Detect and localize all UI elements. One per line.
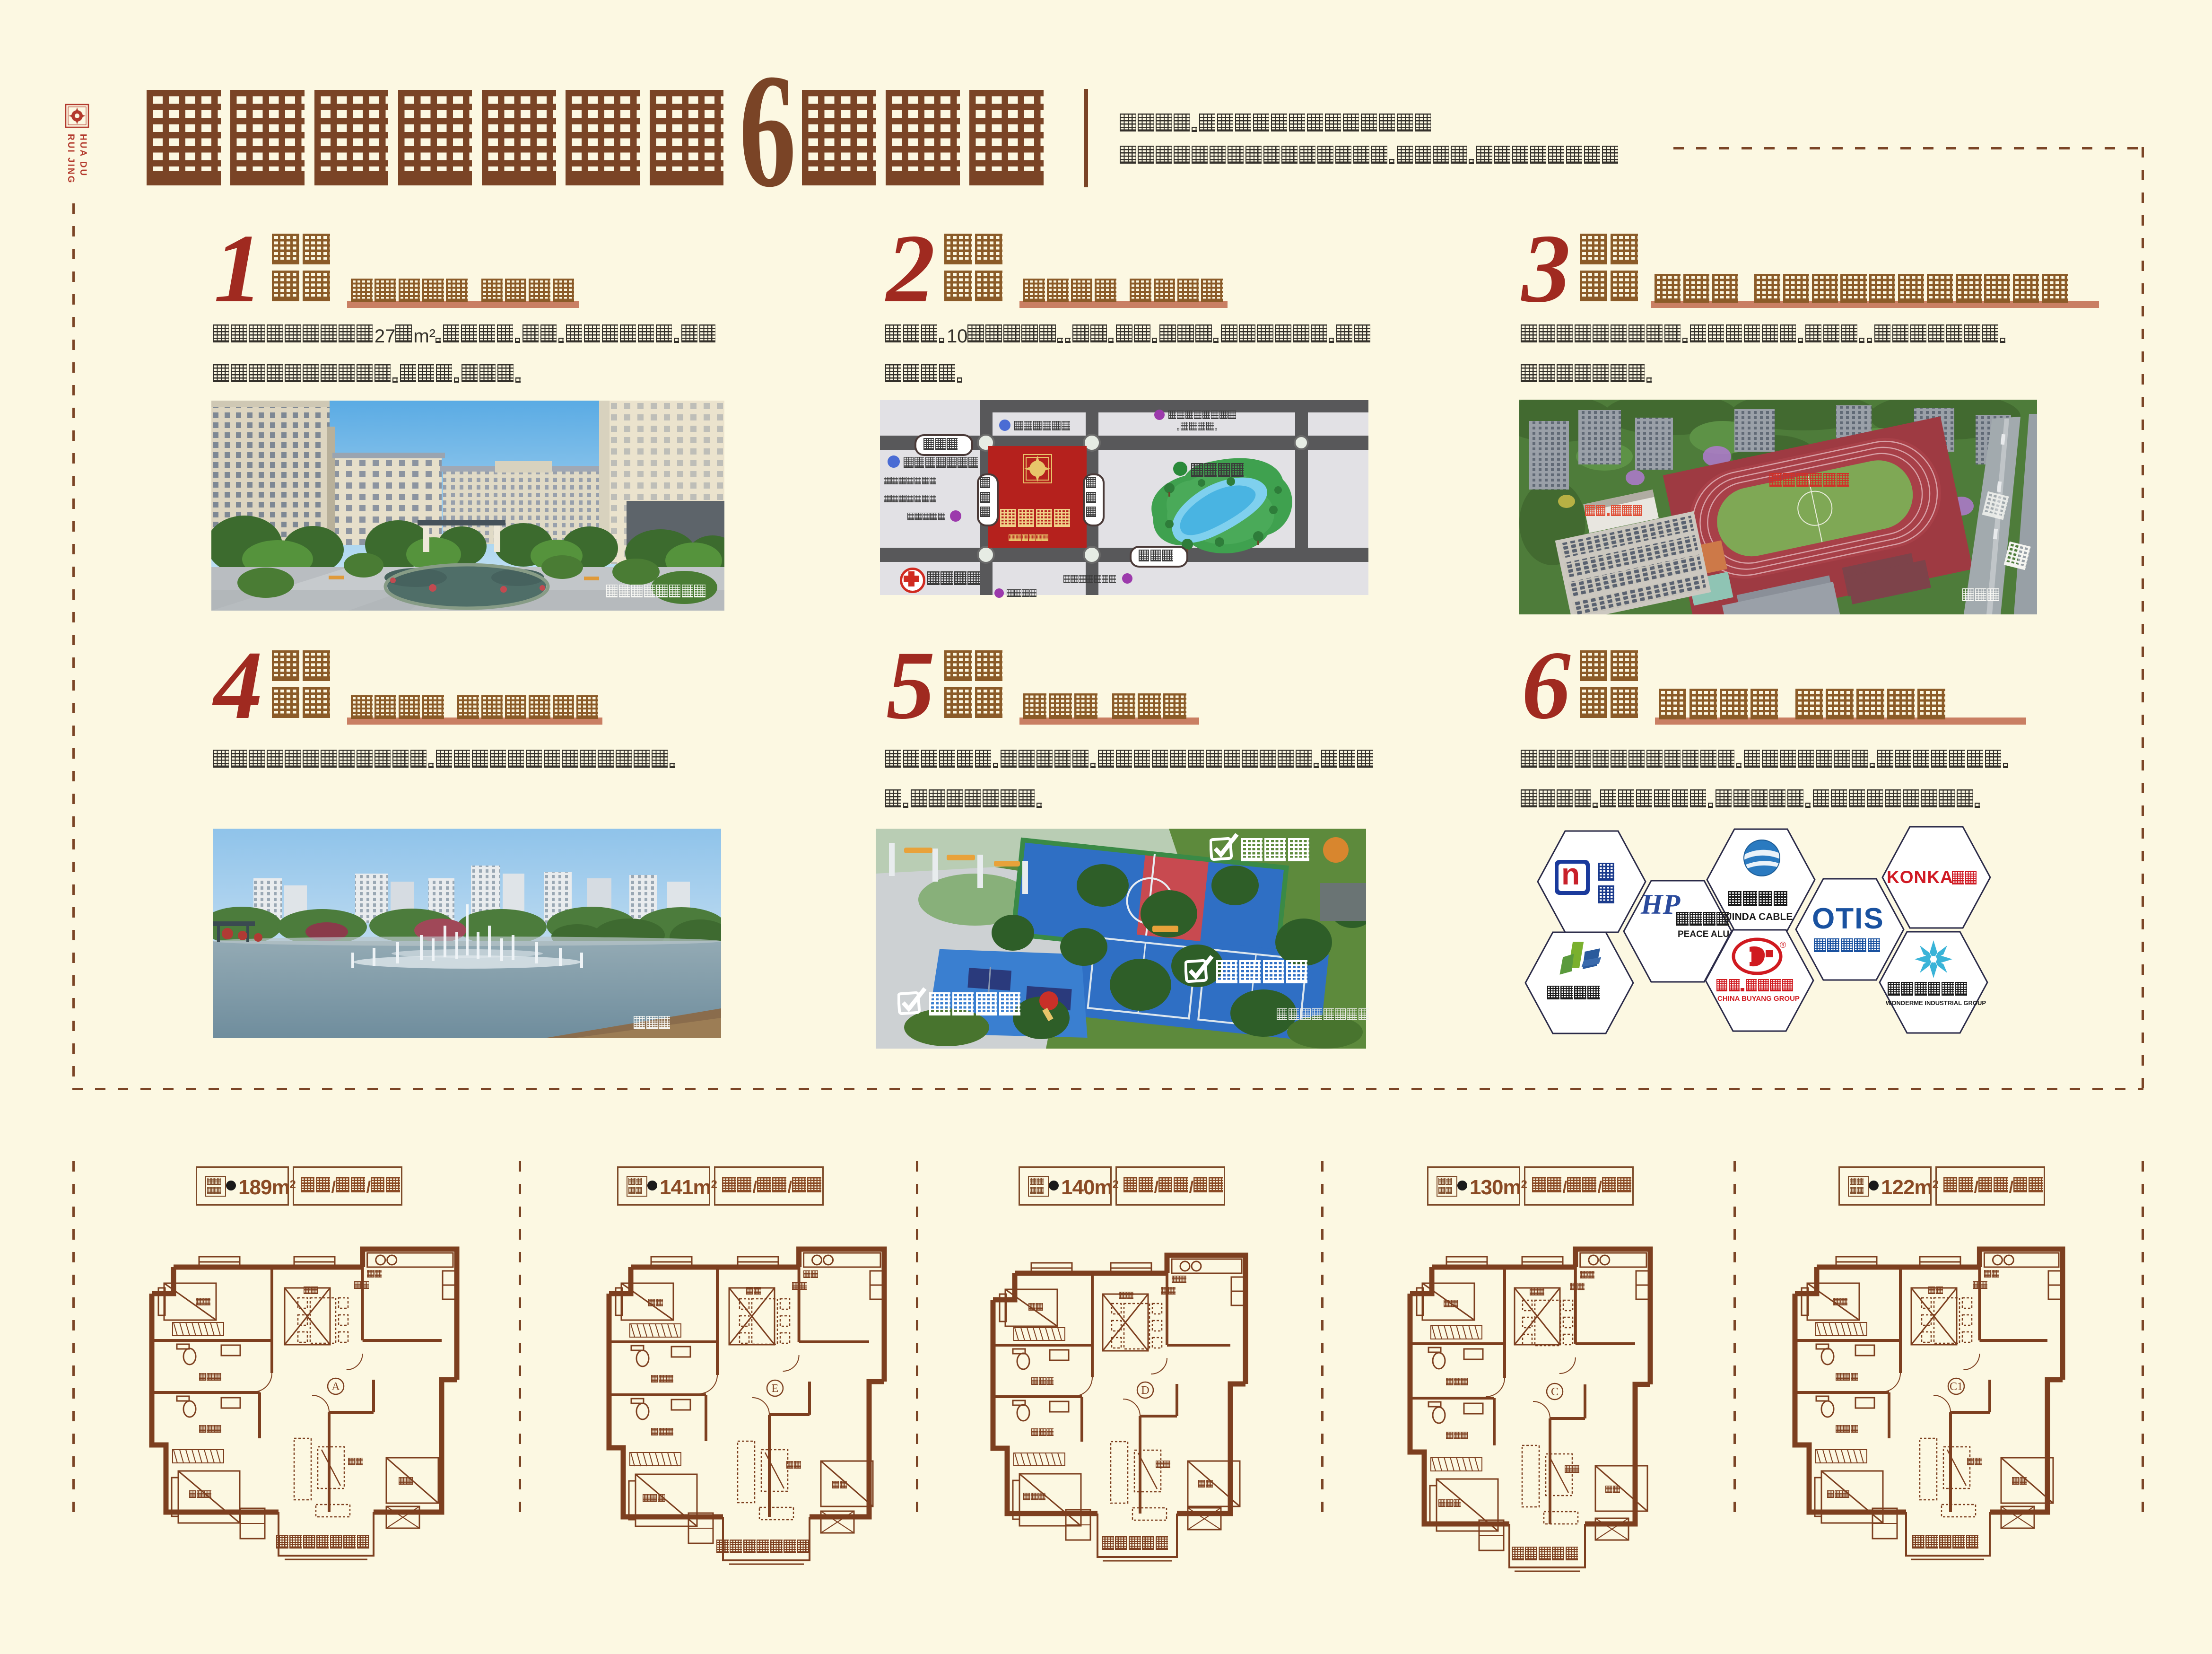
svg-text:A: A [331, 1381, 340, 1393]
svg-text:C: C [1551, 1386, 1559, 1398]
svg-text:C1: C1 [1950, 1381, 1963, 1393]
svg-text:®: ® [1780, 940, 1786, 950]
svg-text:E: E [772, 1383, 779, 1395]
svg-text:D: D [1141, 1384, 1149, 1397]
